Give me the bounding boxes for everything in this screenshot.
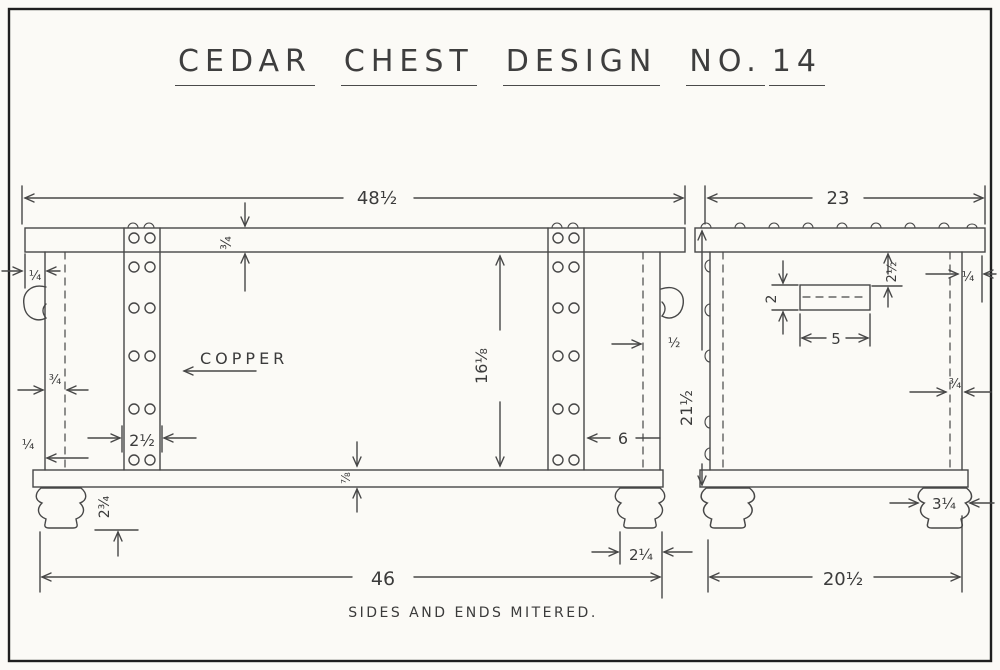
dim-foot-width-front: 2¼: [629, 546, 654, 564]
dim-plate-offset: 2½: [885, 262, 900, 283]
side-left-foot: [701, 488, 754, 528]
dim-strap-inset: 6: [618, 429, 628, 448]
front-right-handle: [661, 288, 683, 318]
blueprint-drawing: 48½ 23 ¾ ¼ ¾ ¼ 2½ COPPER 16⅛ ½ 21½ 6 ⅞ 2…: [0, 0, 1000, 670]
dim-strap-width: 2½: [129, 431, 155, 450]
dim-side-wall: ¾: [49, 373, 62, 388]
front-dimension-lines: [2, 186, 702, 598]
dim-foot-height: 2¾: [97, 495, 113, 518]
side-lid-rivet-row: [701, 223, 977, 228]
dim-panel-height: 16⅛: [472, 348, 491, 384]
front-left-handle: [24, 286, 46, 320]
dim-end-thickness: ½: [668, 336, 681, 351]
dim-lid-thickness: ¾: [219, 236, 235, 250]
dim-bottom-thickness: ⅞: [339, 472, 353, 484]
front-view: [24, 223, 685, 528]
sheet-border: [9, 9, 991, 661]
copper-strap-right: [548, 223, 584, 470]
dim-foot-width-side: 3¼: [932, 495, 957, 513]
dim-plate-height: 2: [764, 295, 780, 304]
dim-wall-thickness-side: ¾: [949, 377, 962, 392]
copper-label: COPPER: [200, 349, 288, 368]
dim-plate-width: 5: [831, 330, 841, 348]
front-right-foot: [615, 488, 665, 528]
dim-lid-overhang-right: ¼: [962, 270, 975, 285]
dim-lid-length: 48½: [357, 188, 397, 209]
dim-top-depth: 23: [827, 188, 850, 209]
dim-base-depth: 20½: [823, 569, 863, 590]
side-strap-rivet-bumps: [705, 260, 710, 460]
side-lid: [695, 228, 985, 252]
front-left-foot: [36, 488, 86, 528]
blueprint-sheet: CEDAR CHEST DESIGN NO. 14: [0, 0, 1000, 670]
side-view: [695, 223, 985, 528]
dim-base-length: 46: [371, 568, 395, 590]
side-base-board: [700, 470, 968, 487]
dim-lid-overhang-left: ¼: [29, 269, 42, 284]
mitered-note: SIDES AND ENDS MITERED.: [348, 605, 598, 621]
dim-bottom-edge: ¼: [22, 438, 35, 453]
dim-overall-height: 21½: [677, 390, 696, 426]
